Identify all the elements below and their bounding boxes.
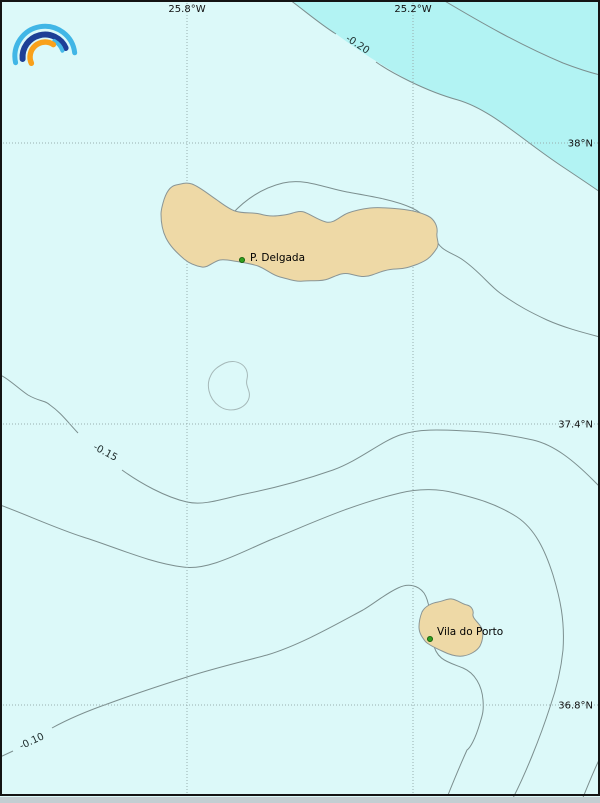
azores-contour-map: 25.8°W25.2°W38°N37.4°N36.8°N-0.20-0.15-0… xyxy=(0,0,600,797)
parallel-label: 36.8°N xyxy=(558,701,593,712)
place-name-label: Vila do Porto xyxy=(437,626,503,638)
parallel-label: 37.4°N xyxy=(558,420,593,431)
place-marker-dot xyxy=(239,257,244,262)
place-name-label: P. Delgada xyxy=(250,252,305,264)
parallel-label: 38°N xyxy=(568,139,593,150)
map-fills xyxy=(0,0,600,797)
place-marker-dot xyxy=(427,636,432,641)
meridian-label: 25.8°W xyxy=(168,4,205,15)
meridian-label: 25.2°W xyxy=(394,4,431,15)
map-figure: 25.8°W25.2°W38°N37.4°N36.8°N-0.20-0.15-0… xyxy=(0,0,600,803)
map-canvas: 25.8°W25.2°W38°N37.4°N36.8°N-0.20-0.15-0… xyxy=(0,0,600,797)
figure-bottom-margin xyxy=(0,797,600,803)
